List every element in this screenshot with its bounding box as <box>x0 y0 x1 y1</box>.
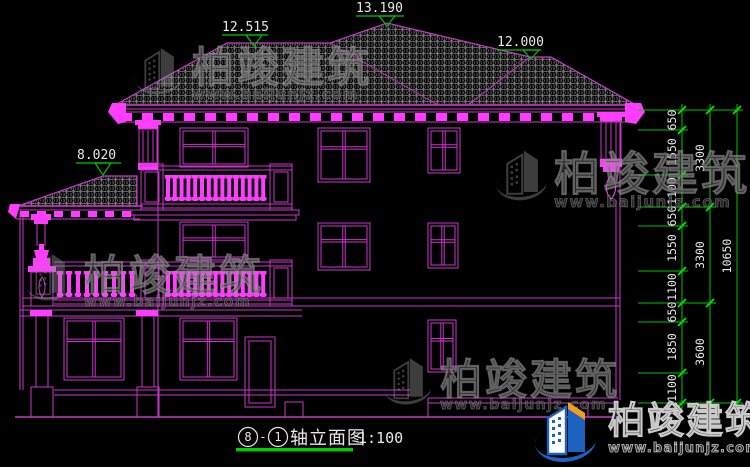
ground-pilaster-left <box>30 310 53 417</box>
eave-end-right <box>625 103 645 124</box>
left-pilaster <box>135 120 161 170</box>
watermark-logo-icon <box>384 358 431 404</box>
balcony-slab-3f <box>131 210 299 220</box>
ground-pilaster-right <box>136 310 159 417</box>
footer-brand: 柏竣建筑 www.baijunjz.com <box>535 399 750 462</box>
svg-text:1: 1 <box>274 430 281 444</box>
watermark-left: 柏竣建筑 www.baijunjz.com <box>26 251 264 310</box>
cad-elevation-drawing: 650 1550 1100 650 1550 1100 650 1850 110… <box>0 0 750 467</box>
brand-name: 柏竣建筑 <box>608 399 750 442</box>
brand-url: www.baijunjz.com <box>608 441 750 456</box>
drawing-title: 8 - 1 轴立面图 1:100 <box>236 428 403 452</box>
svg-text:www.baijunjz.com: www.baijunjz.com <box>554 193 731 211</box>
svg-text:12.515: 12.515 <box>222 20 269 35</box>
svg-text:8: 8 <box>244 430 251 444</box>
svg-text:www.baijunjz.com: www.baijunjz.com <box>192 87 359 103</box>
porch-roof <box>18 176 137 206</box>
title-scale: 1:100 <box>358 429 403 447</box>
svg-text:8.020: 8.020 <box>77 148 116 163</box>
entry-door <box>245 337 275 407</box>
watermark-right: 柏竣建筑 www.baijunjz.com <box>496 147 750 211</box>
drawing-canvas: 650 1550 1100 650 1550 1100 650 1850 110… <box>0 0 750 467</box>
dim-label: 3600 <box>693 338 707 366</box>
door-step <box>285 402 303 417</box>
elevation-marker-porch: 8.020 <box>76 148 121 175</box>
svg-text:柏竣建筑: 柏竣建筑 <box>192 43 372 92</box>
watermark-bottom: 柏竣建筑 www.baijunjz.com <box>384 355 620 413</box>
svg-text:12.000: 12.000 <box>497 35 544 50</box>
elevation-marker-peak: 13.190 <box>356 1 404 26</box>
svg-text:www.baijunjz.com: www.baijunjz.com <box>84 294 251 310</box>
dim-label: 1100 <box>665 374 679 402</box>
dim-label: 3300 <box>693 241 707 269</box>
svg-text:-: - <box>259 430 266 444</box>
title-underline <box>236 448 353 451</box>
svg-text:www.baijunjz.com: www.baijunjz.com <box>440 397 607 413</box>
dim-label: 1550 <box>665 234 679 262</box>
dim-label: 1850 <box>665 333 679 361</box>
porch-eave-end <box>8 204 20 219</box>
dim-label: 650 <box>665 302 679 323</box>
svg-text:柏竣建筑: 柏竣建筑 <box>84 251 264 300</box>
dim-label: 650 <box>665 110 679 131</box>
title-text: 轴立面图 <box>290 428 366 449</box>
watermark-logo-icon <box>496 151 547 201</box>
svg-text:13.190: 13.190 <box>356 1 403 16</box>
dim-label: 1100 <box>665 273 679 301</box>
dim-label-total: 10650 <box>720 239 734 274</box>
